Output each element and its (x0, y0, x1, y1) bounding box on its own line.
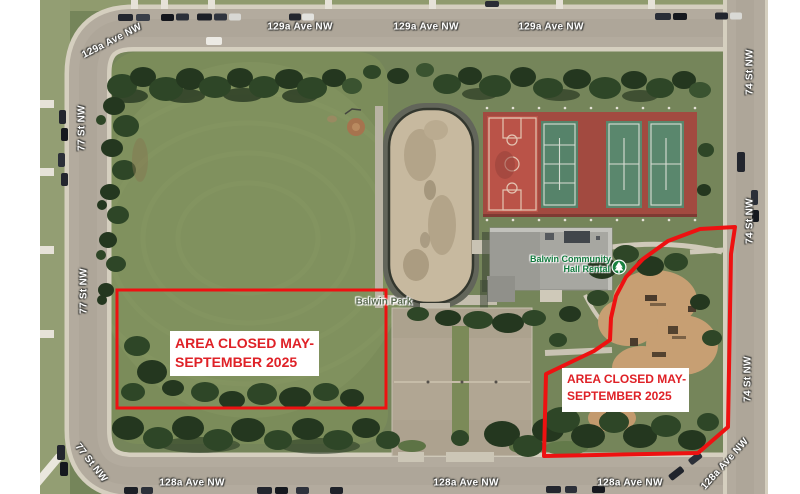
closure-notice-west: AREA CLOSED MAY- SEPTEMBER 2025 (170, 331, 319, 376)
satellite-map (40, 0, 768, 494)
street-label-74-st-nw: 74 St NW (743, 356, 754, 402)
satellite-imagery (40, 0, 768, 494)
park-closure-map: 129a Ave NW 129a Ave NW 129a Ave NW 129a… (0, 0, 800, 494)
community-hall-label-line2: Hall Rental (530, 264, 610, 274)
community-hall-label-line1: Balwin Community (530, 254, 610, 264)
street-label-129a-ave-nw: 129a Ave NW (393, 22, 458, 33)
park-marker-icon (612, 260, 627, 275)
park-name-label: Balwin Park (356, 297, 413, 308)
street-label-74-st-nw: 74 St NW (745, 198, 756, 244)
tennis-courts (541, 121, 684, 208)
street-label-74-st-nw: 74 St NW (745, 49, 756, 95)
street-label-128a-ave-nw: 128a Ave NW (433, 478, 498, 489)
closure-notice-line2: SEPTEMBER 2025 (567, 388, 689, 405)
street-label-77-st-nw: 77 St NW (77, 105, 88, 151)
street-label-77-st-nw: 77 St NW (79, 268, 90, 314)
street-label-128a-ave-nw: 128a Ave NW (159, 478, 224, 489)
closure-notice-east: AREA CLOSED MAY- SEPTEMBER 2025 (562, 368, 689, 412)
closure-notice-line1: AREA CLOSED MAY- (175, 334, 319, 353)
hockey-rink (383, 103, 490, 311)
street-label-129a-ave-nw: 129a Ave NW (518, 22, 583, 33)
closure-notice-line1: AREA CLOSED MAY- (567, 371, 689, 388)
street-label-129a-ave-nw: 129a Ave NW (267, 22, 332, 33)
street-label-128a-ave-nw: 128a Ave NW (597, 478, 662, 489)
community-hall-label: Balwin Community Hall Rental (530, 254, 610, 274)
closure-notice-line2: SEPTEMBER 2025 (175, 353, 319, 372)
sport-courts (483, 107, 697, 222)
basketball-court (487, 116, 538, 212)
